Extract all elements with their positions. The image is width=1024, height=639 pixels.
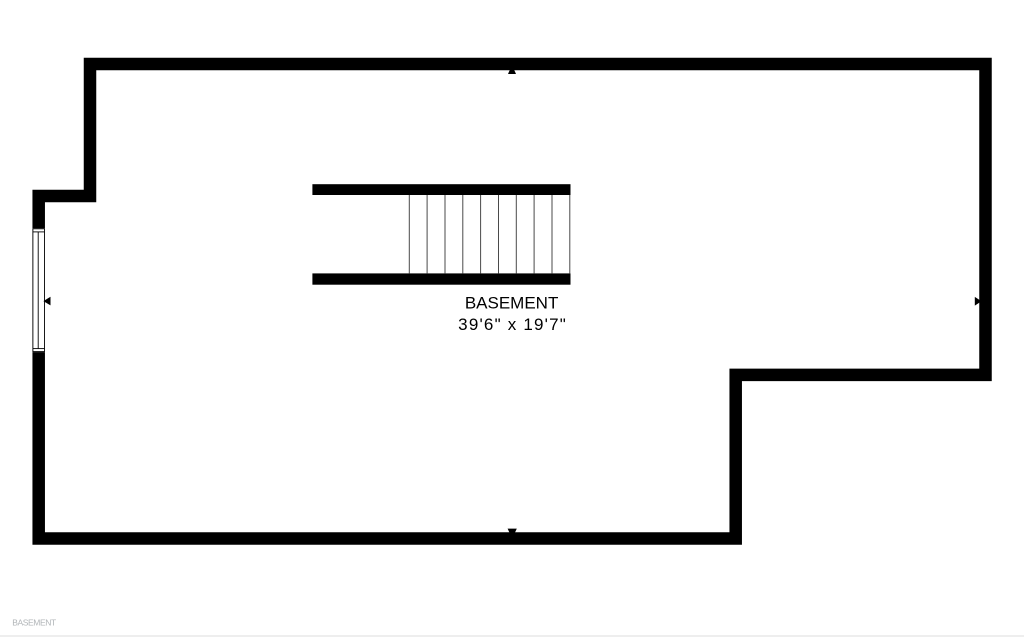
svg-text:BASEMENT: BASEMENT <box>465 293 559 312</box>
svg-text:39'6" x 19'7": 39'6" x 19'7" <box>458 315 567 334</box>
svg-text:BASEMENT: BASEMENT <box>12 617 56 627</box>
